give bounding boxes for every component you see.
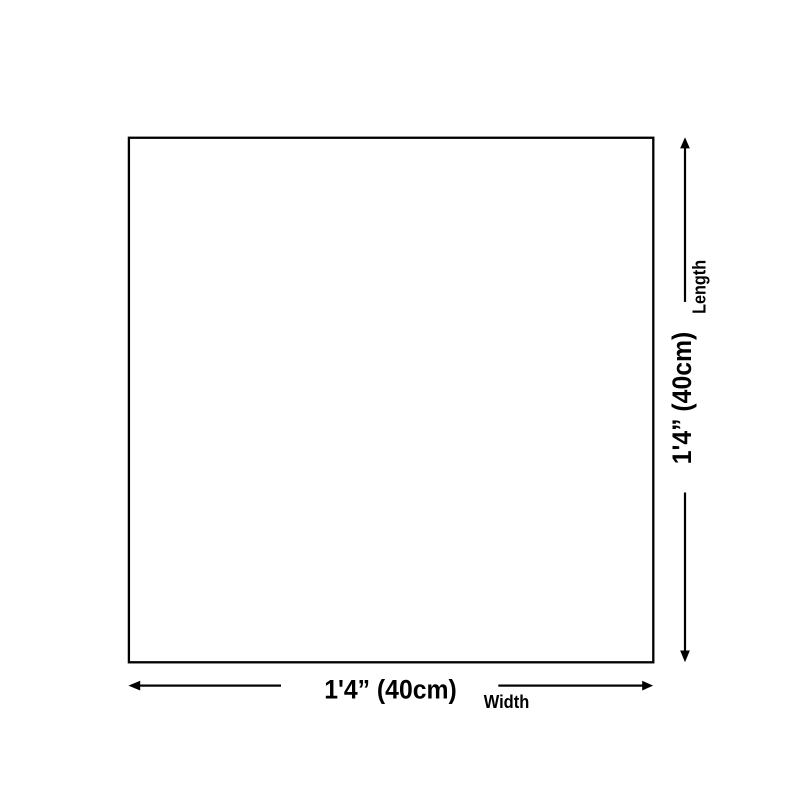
svg-text:Width: Width	[484, 692, 530, 712]
svg-text:1'4” (40cm): 1'4” (40cm)	[324, 674, 457, 704]
svg-text:Length: Length	[690, 260, 710, 314]
svg-text:1'4” (40cm): 1'4” (40cm)	[667, 332, 697, 465]
